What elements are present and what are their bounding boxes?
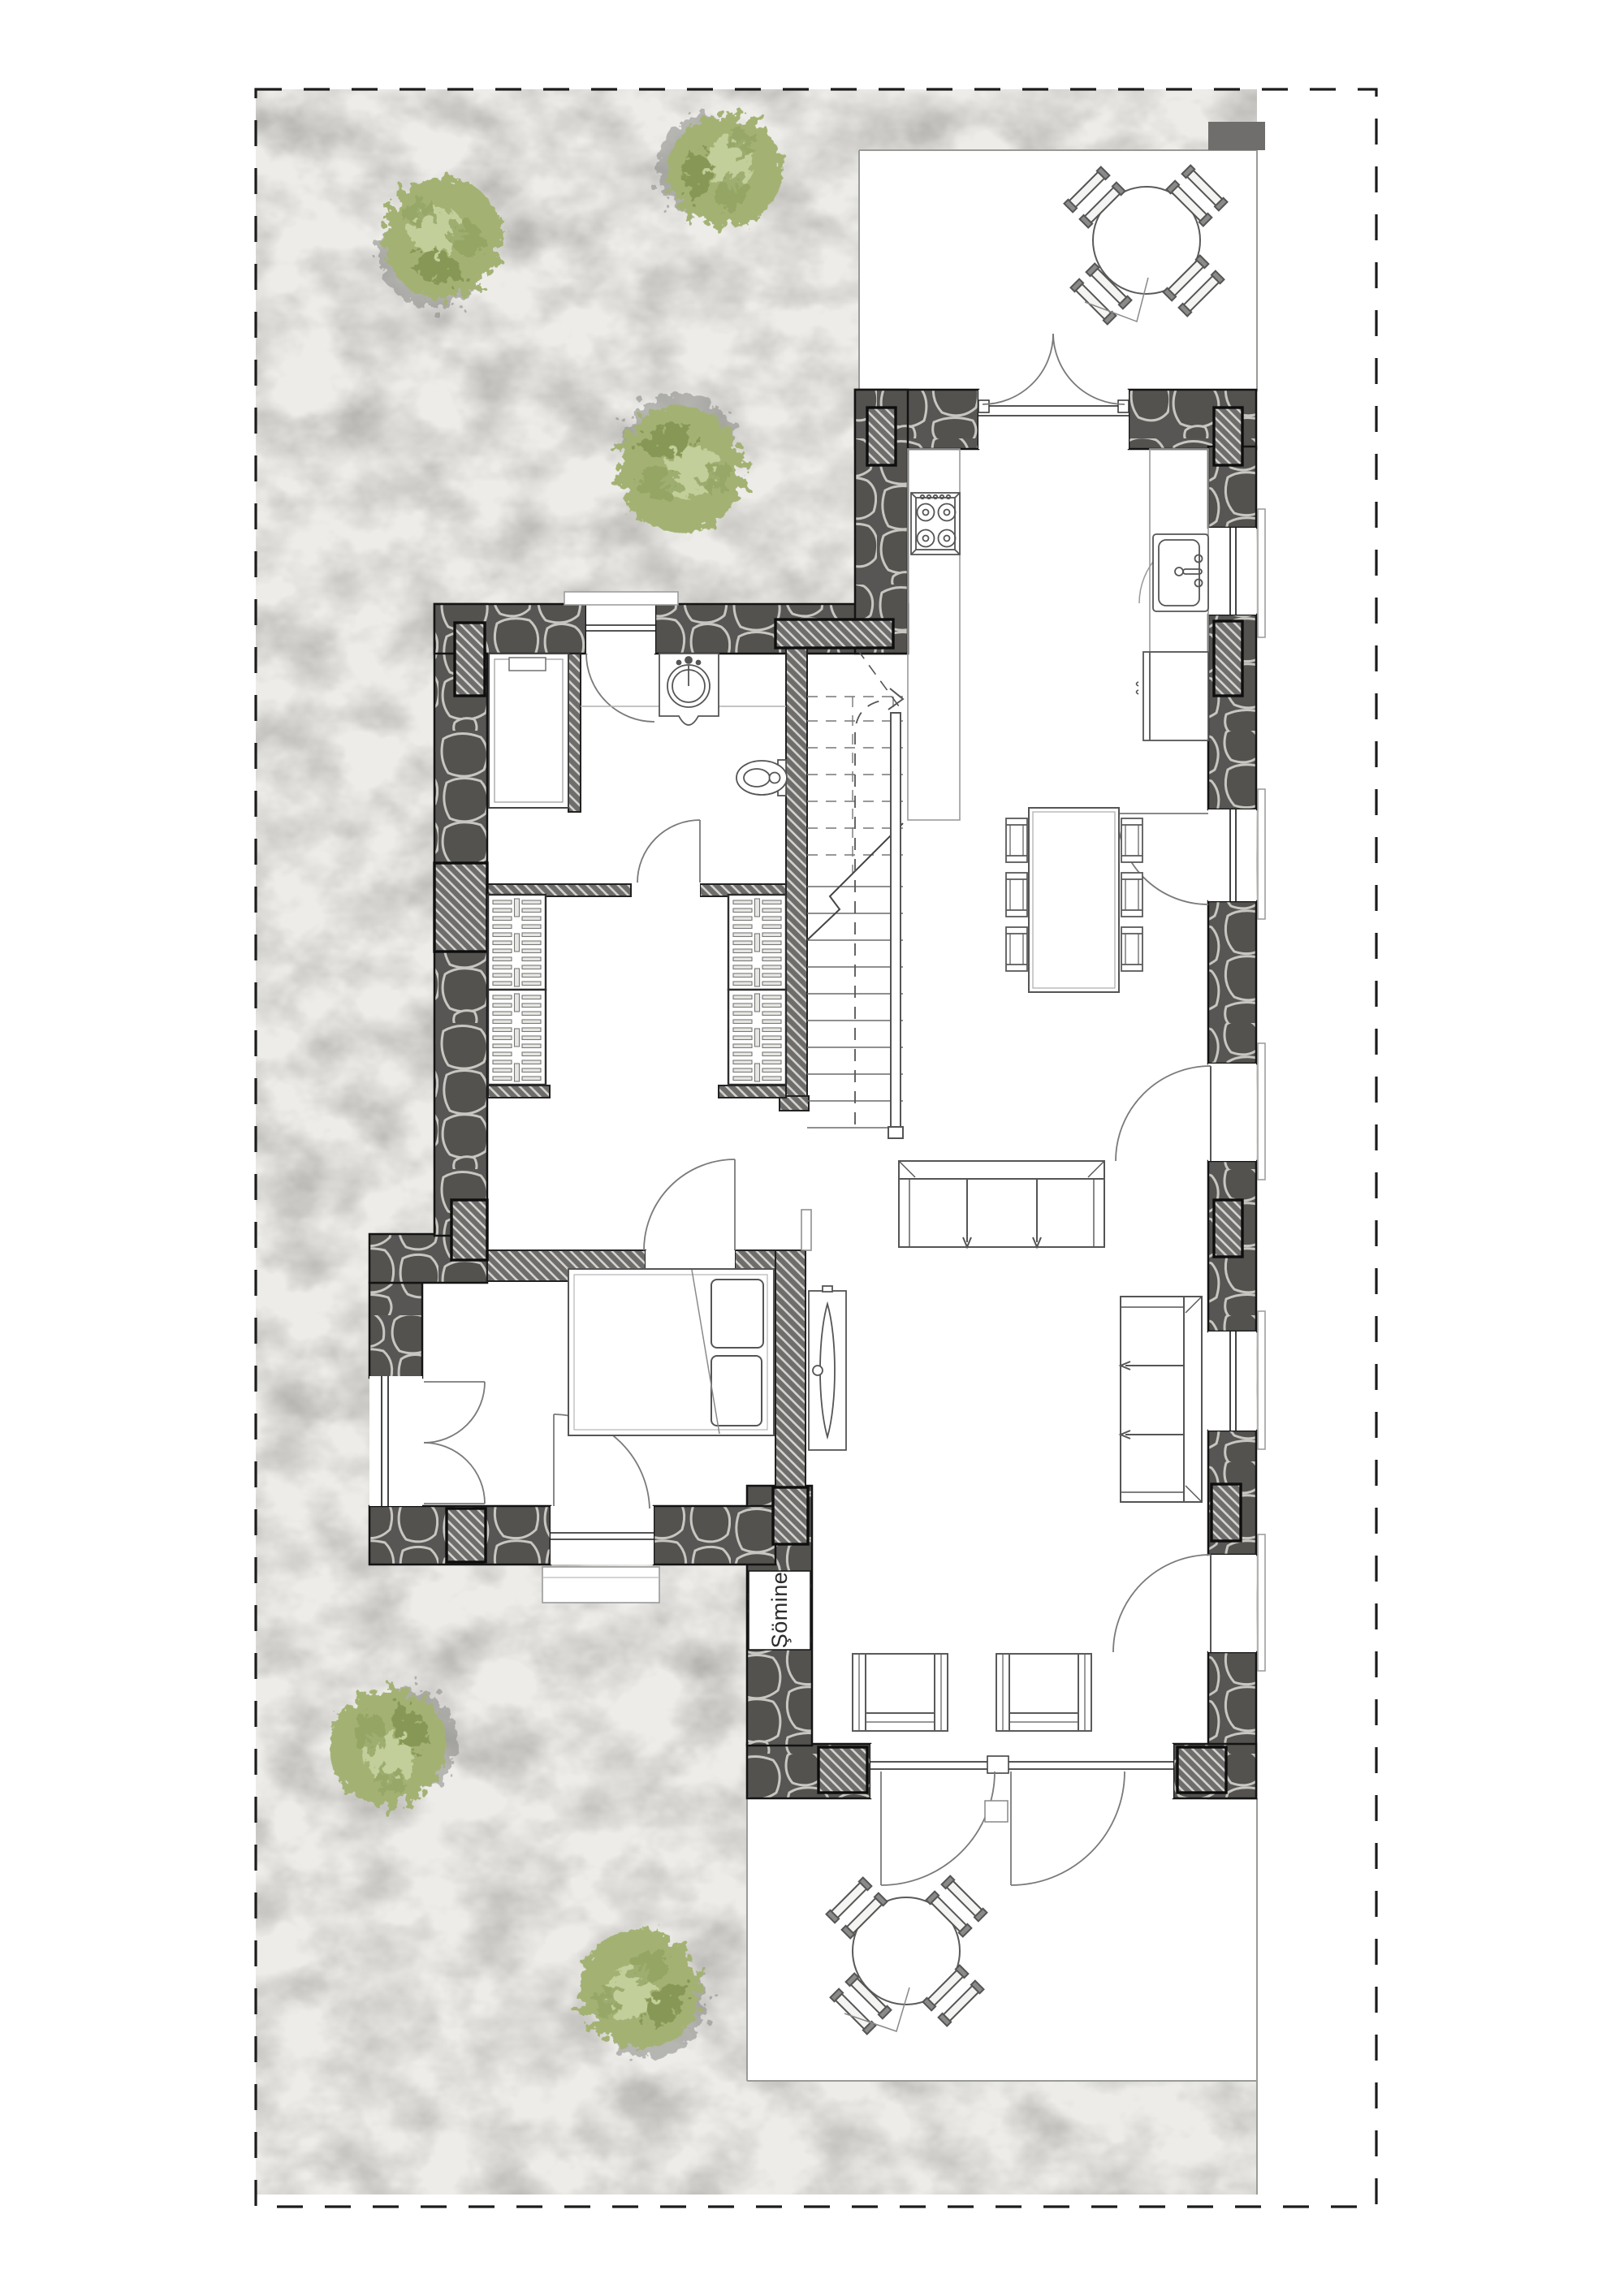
fireplace (809, 1286, 846, 1450)
dining-chair (1121, 818, 1142, 862)
dining-chair (1121, 873, 1142, 917)
dining-chair (1006, 873, 1027, 917)
dining-chair (1121, 927, 1142, 971)
terrace-south (827, 1876, 987, 2035)
wardrobe (488, 895, 546, 990)
kitchen-sink (1153, 534, 1208, 611)
toilet (736, 760, 787, 796)
wall-bedroom-south (654, 1506, 775, 1564)
dining-table (1029, 808, 1119, 992)
dining-chair (1006, 927, 1027, 971)
wardrobe (728, 990, 786, 1085)
bed (568, 1269, 774, 1435)
armchair (853, 1654, 948, 1731)
corridor-jamb (801, 1210, 811, 1250)
sofa-three-seat (899, 1161, 1104, 1247)
stair-beam (775, 619, 893, 648)
window-living-east (1208, 1331, 1256, 1431)
wardrobe (488, 990, 546, 1085)
floor-plan-page: Şömine (0, 0, 1624, 2296)
south-glazed-doors (870, 1744, 1173, 1885)
garden-wall-block (1208, 122, 1265, 150)
stair-handrail (891, 713, 901, 1132)
wall-bedroom-west (369, 1283, 422, 1378)
refrigerator (1137, 652, 1209, 740)
window-sill-ledges (1258, 509, 1265, 1671)
fireplace-label: Şömine (749, 1571, 810, 1650)
bathroom-sink (659, 654, 719, 725)
fireplace-label-text: Şömine (767, 1572, 792, 1649)
wardrobe (728, 895, 786, 990)
sofa-two-seat (1121, 1297, 1202, 1502)
wall-east (1208, 901, 1256, 1064)
armchair (996, 1654, 1091, 1731)
dining-area (1006, 808, 1142, 992)
terrace-north (1065, 166, 1228, 325)
bedroom (568, 1269, 774, 1435)
entry-double-door (978, 334, 1129, 449)
dining-chair (1006, 818, 1027, 862)
stove (911, 493, 960, 555)
shower (489, 654, 568, 808)
